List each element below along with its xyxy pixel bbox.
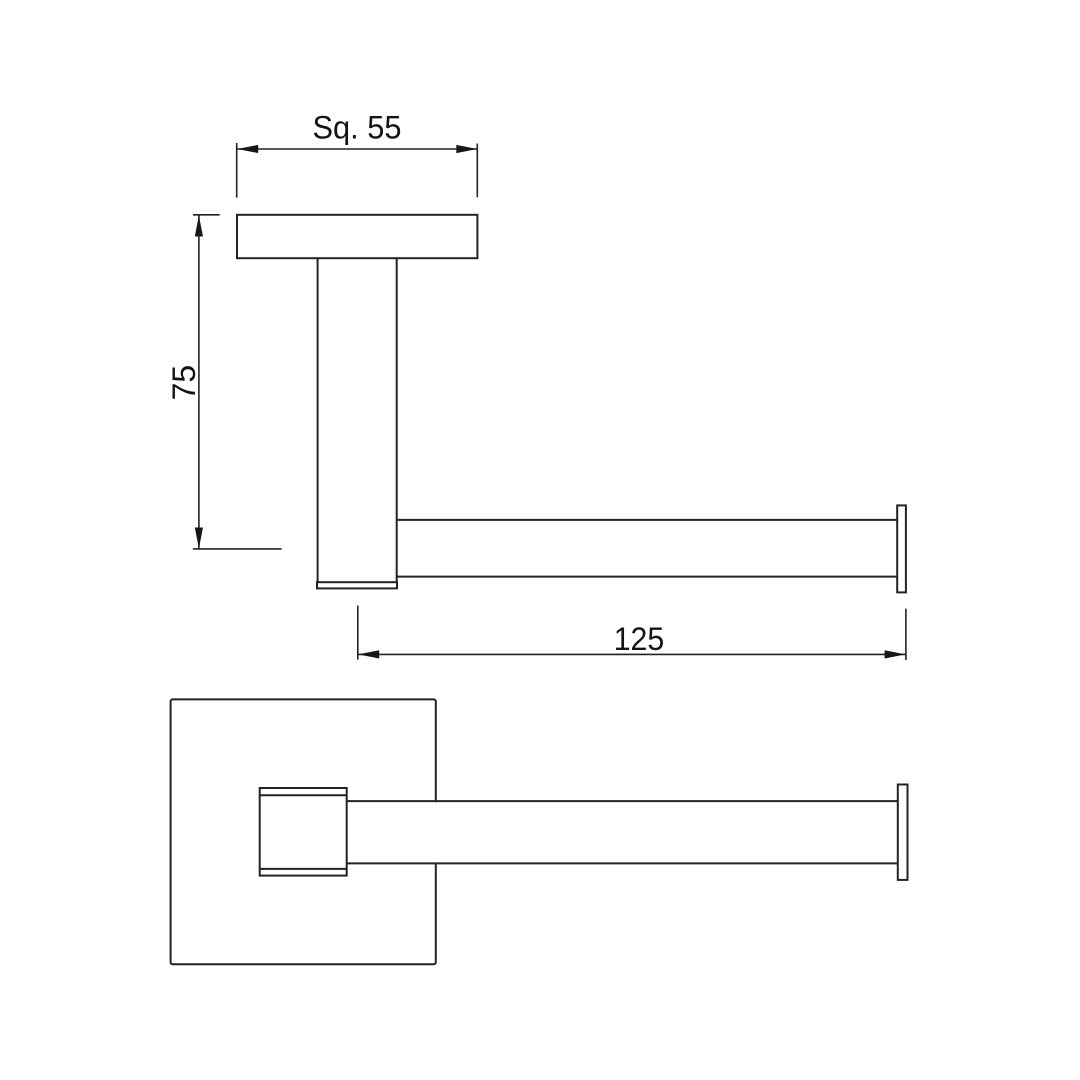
svg-text:Sq. 55: Sq. 55: [313, 109, 402, 145]
svg-text:125: 125: [614, 621, 665, 657]
svg-text:75: 75: [166, 365, 202, 401]
